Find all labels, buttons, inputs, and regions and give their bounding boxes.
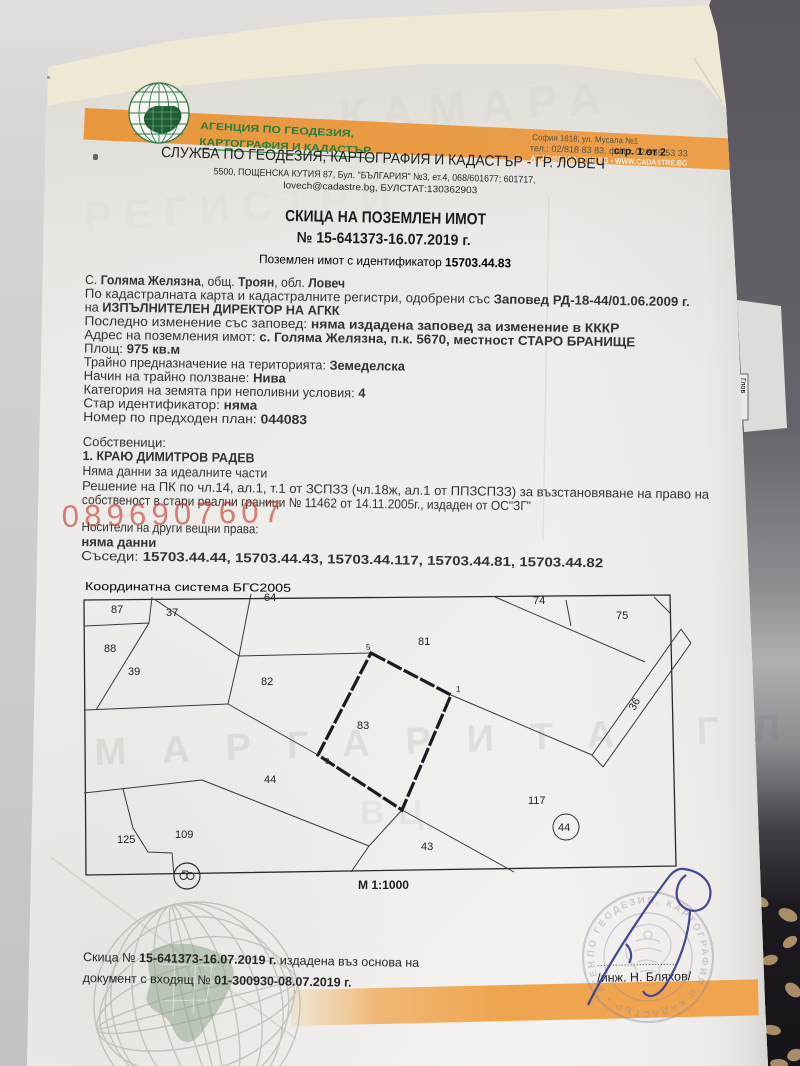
svg-text:СКИЦА НА ПОЗЕМЛЕН ИМОТ: СКИЦА НА ПОЗЕМЛЕН ИМОТ — [285, 208, 486, 229]
svg-text:Координатна система БГС2005: Координатна система БГС2005 — [85, 581, 291, 595]
svg-text:87: 87 — [111, 604, 123, 616]
svg-text:44: 44 — [264, 774, 276, 786]
svg-text:0896907607: 0896907607 — [61, 494, 286, 534]
svg-text:/инж. Н. Бляхов/: /инж. Н. Бляхов/ — [597, 969, 692, 985]
svg-text:88: 88 — [104, 643, 116, 655]
svg-text:83: 83 — [357, 720, 369, 732]
svg-text:3: 3 — [325, 757, 330, 766]
svg-text:82: 82 — [261, 676, 273, 688]
svg-text:117: 117 — [528, 795, 546, 807]
svg-text:39: 39 — [128, 666, 140, 678]
svg-text:5: 5 — [366, 643, 371, 652]
svg-text:109: 109 — [175, 829, 193, 841]
svg-text:75: 75 — [616, 610, 628, 622]
svg-text:44: 44 — [558, 822, 570, 834]
svg-text:81: 81 — [418, 636, 430, 648]
svg-text:74: 74 — [533, 595, 545, 607]
svg-text:125: 125 — [117, 834, 135, 846]
svg-text:43: 43 — [421, 841, 433, 853]
svg-text:М 1:1000: М 1:1000 — [358, 880, 409, 892]
svg-text:1: 1 — [456, 685, 461, 694]
svg-text:37: 37 — [166, 607, 178, 619]
svg-text:№ 15-641373-16.07.2019 г.: № 15-641373-16.07.2019 г. — [297, 229, 471, 249]
svg-text:Номер по предходен план: 0440: Номер по предходен план: 044083 — [83, 409, 307, 427]
svg-text:стр. 1 от 2: стр. 1 от 2 — [614, 145, 667, 159]
svg-text:64: 64 — [264, 592, 276, 604]
